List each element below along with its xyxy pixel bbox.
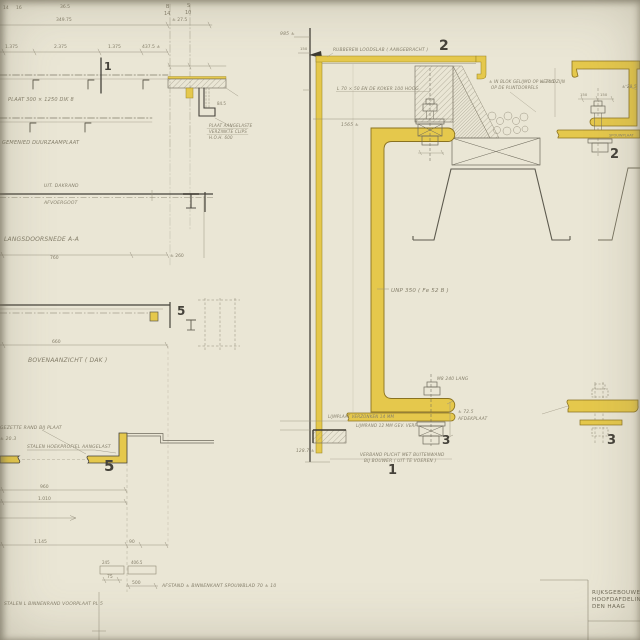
title-line-2: HOOFDAFDELING ONDERH.	[592, 597, 640, 603]
dim-34975: 349.75	[56, 17, 72, 23]
dim-245: 245	[102, 560, 110, 565]
ann-1287: 128.7 ±	[296, 448, 315, 454]
ann-iso2: OP DE PLINTDORPELS	[491, 85, 539, 90]
ann-doorsnede: LANGSDOORSNEDE A-A	[4, 236, 79, 243]
dim-150b: 150	[600, 92, 608, 97]
plate-top	[567, 400, 638, 412]
corner-frac-a: 14	[3, 5, 9, 11]
ann-pm295: ± 29.5	[622, 84, 637, 89]
detail-3-label: 3	[442, 433, 450, 447]
insulation-block	[415, 66, 453, 122]
dim-1375b: 1.375	[108, 44, 121, 50]
ann-pm345: ± 34.5	[540, 79, 555, 84]
yellow-bar-left	[0, 456, 20, 463]
flashing-strip	[168, 77, 226, 79]
detail-3r-label: 3	[607, 433, 616, 448]
ann-hoek: STALEN HOEKPROFIEL AANGELAST	[27, 444, 112, 450]
dim-500: 500	[132, 580, 141, 586]
ann-lijm1: LIJMPLAAT VERZONKEN 14 MM	[328, 414, 395, 419]
ann-1565: 1565 ±	[341, 122, 359, 128]
grid2-bot: 10	[185, 10, 191, 16]
ann-m8: M8 240 LANG	[437, 376, 469, 382]
dim-260: ± 260	[170, 253, 184, 259]
detail-5-plan-label: 5	[177, 304, 185, 318]
dim-2375: 2.375	[54, 44, 67, 50]
ann-plate: PLAAT 300 × 1250 DIK 8	[8, 97, 74, 103]
yellow-insert	[186, 88, 193, 98]
dim-150a: 150	[580, 92, 588, 97]
detail-5-label: 5	[104, 457, 114, 475]
dim-4375: 437.5 ±	[142, 44, 160, 50]
dim-90: 90	[129, 539, 135, 545]
strip-bottom	[580, 420, 622, 425]
title-line-1: RIJKSGEBOUWENDIENST	[592, 590, 640, 596]
detail-1-label: 1	[388, 463, 397, 478]
dim-1010: 1.010	[38, 496, 51, 502]
dim-660: 660	[52, 339, 61, 345]
ann-dakrand: UIT. DAKRAND	[44, 183, 79, 189]
ann-pm725: ± 72.5	[458, 409, 474, 415]
drawing-svg: 1	[0, 0, 640, 640]
dim-75: 75	[107, 574, 113, 580]
dim-1375a: 1.375	[5, 44, 18, 50]
ann-lijm2: LIJMRAND 12 MM GEV. VERF	[356, 423, 418, 428]
section-cut-label: 1	[104, 60, 112, 73]
grid1-bot: 14	[164, 11, 170, 17]
ann-845: 84.5	[217, 101, 226, 106]
top-flashing	[316, 56, 476, 62]
drawing-sheet: 1	[0, 0, 640, 640]
ann-goot: AFVOERGOOT	[43, 200, 79, 206]
ann-clips3: H.O.H. 600	[209, 135, 233, 140]
ann-duurzaam: GEMENIED DUURZAAMPLAAT	[2, 140, 80, 146]
ann-spouwplaat: SPOUWPLAAT	[609, 134, 634, 138]
ann-clips1: PLAAT AANGELASTE	[209, 123, 253, 128]
ann-pm203: ± 20.3	[0, 436, 16, 442]
ann-unp: UNP 350 ( Fe 52 B )	[391, 288, 449, 294]
yellow-angle-plan	[150, 312, 158, 321]
ann-afstand: AFSTAND ± BINNENKANT SPOUWBLAD 70 ± 10	[161, 583, 276, 589]
detail-2-label: 2	[439, 38, 449, 54]
title-line-3: DEN HAAG	[592, 604, 625, 610]
corner-frac-b: 16	[16, 5, 22, 11]
dim-4065: 406.5	[131, 560, 143, 565]
mark-365: 36.5	[60, 4, 70, 10]
ann-afdek: AFDEKPLAAT	[457, 416, 488, 422]
detail-2r-label: 2	[610, 147, 619, 162]
ann-rand: GEZETTE RAND BIJ PLAAT	[0, 425, 63, 431]
dim-760: 760	[50, 255, 59, 261]
dim-275: ± 27.5	[172, 17, 187, 23]
grid1-top: B	[166, 4, 170, 10]
ann-verband2: BIJ BOUWER ( UIT TE VOEREN )	[364, 458, 437, 464]
dim-960: 960	[40, 484, 49, 490]
ann-rubber: RUBBEREN LOODSLAB ( AANGEBRACHT )	[333, 47, 428, 53]
outer-cladding-strip	[316, 56, 322, 453]
ann-bovenaanzicht: BOVENAANZICHT ( DAK )	[28, 357, 107, 364]
base-block	[313, 430, 346, 443]
ann-binnenrand: STALEN L BINNENRAND VOORPLAAT PL 5	[4, 601, 103, 607]
ann-clips2: VERZINKTE CLIPS	[209, 129, 247, 134]
ann-verband1: VERBAND PLICHT MET BUITENWAND	[360, 452, 445, 458]
dim-1145: 1.145	[34, 539, 47, 545]
grid2-top: S	[187, 3, 190, 9]
hatched-bar	[168, 79, 226, 88]
ann-koker: L 70 × 50 EN DE KOKER 100 HOOG	[337, 86, 419, 92]
tick-75: 150	[300, 46, 308, 51]
ann-985: 985 ±	[280, 31, 295, 37]
